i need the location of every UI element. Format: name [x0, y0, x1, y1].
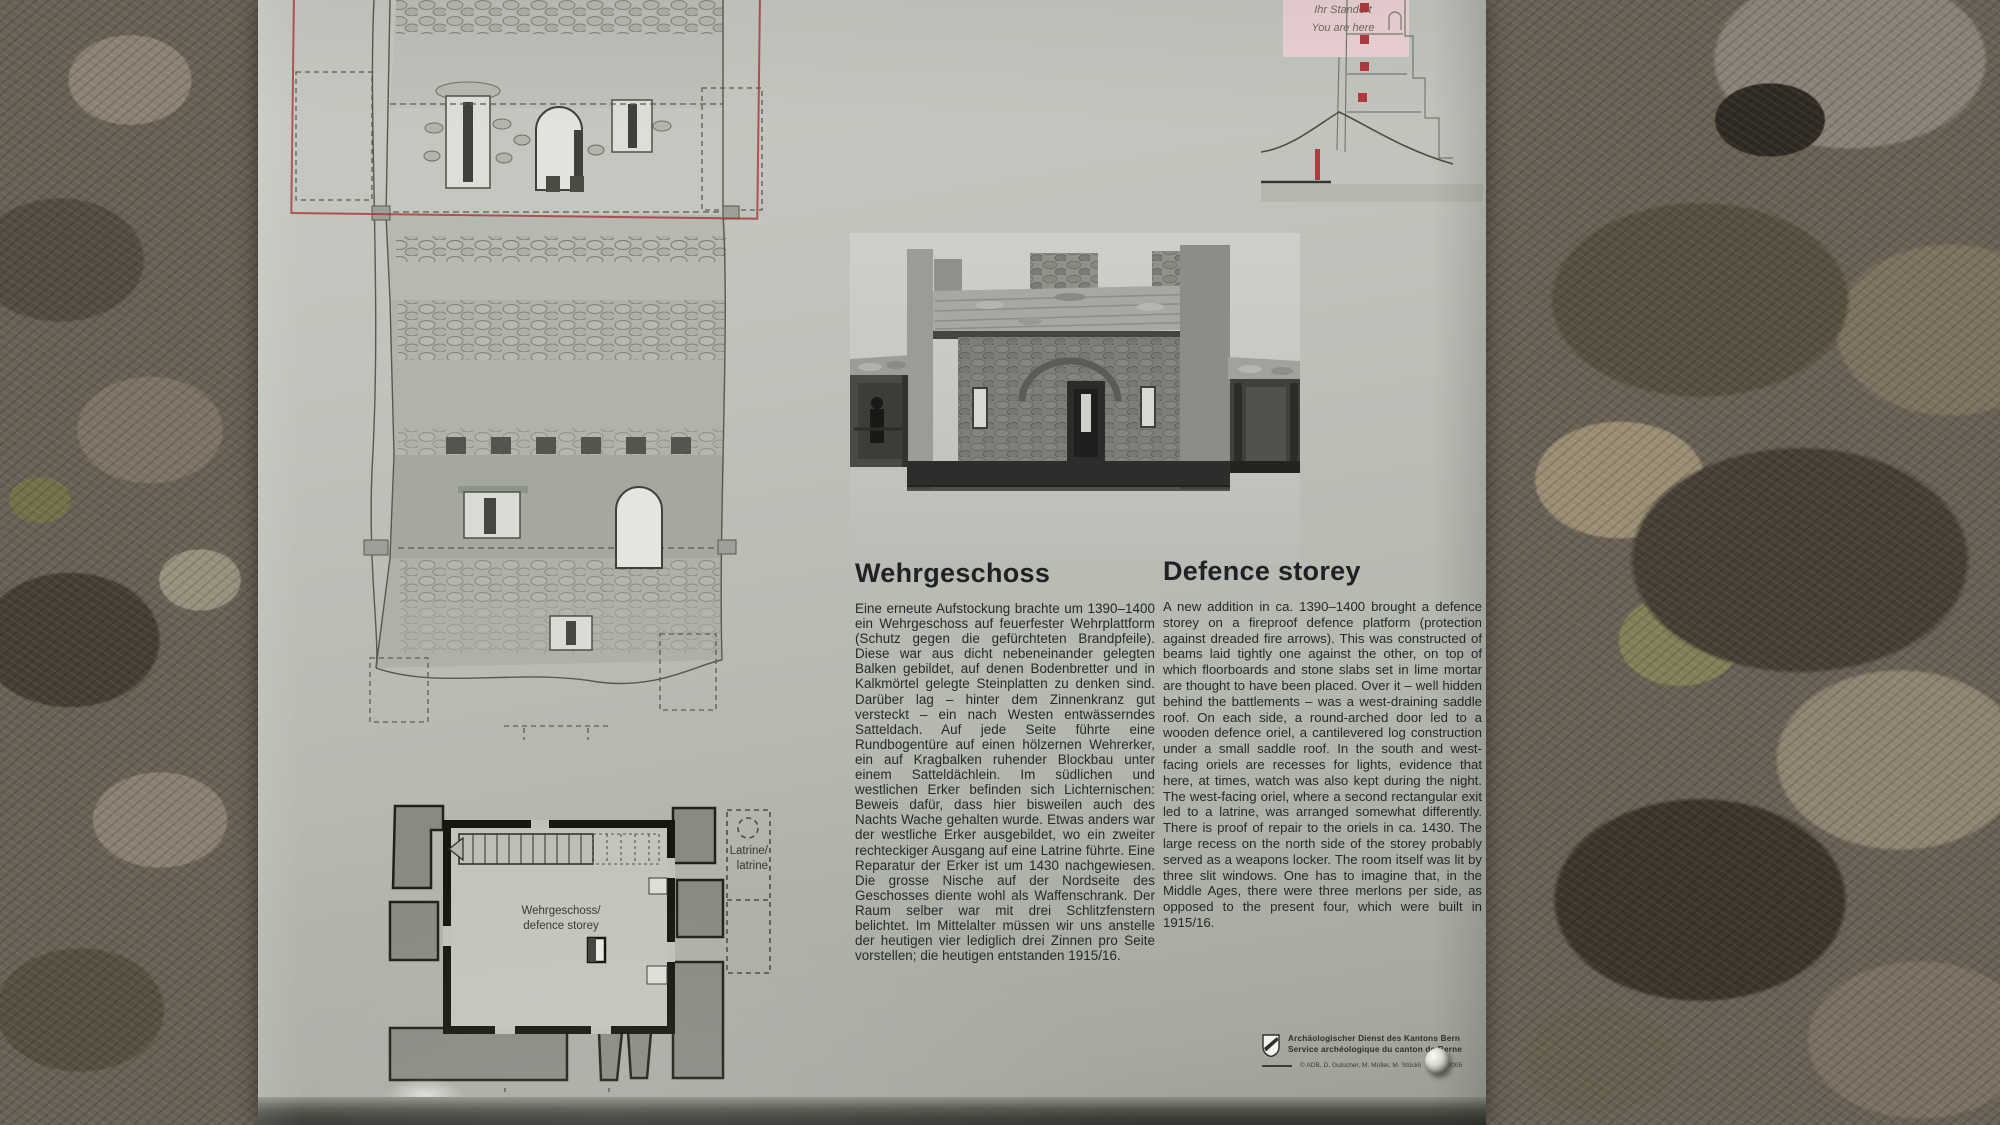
english-paragraph: A new addition in ca. 1390–1400 brought …: [1163, 599, 1482, 931]
latrine-label-line1: Latrine/: [730, 845, 769, 857]
locator-label-en: You are here: [1312, 22, 1375, 34]
centre-post: [588, 938, 605, 962]
information-panel: Ihr Standort You are here: [258, 0, 1486, 1125]
west-defence-oriel: [850, 355, 912, 467]
east-defence-oriel: [1228, 357, 1300, 473]
room-label-line2: defence storey: [523, 920, 599, 932]
watchman-figure: [871, 397, 883, 409]
ground-band: [1261, 184, 1483, 202]
latrine-label-line2: latrine: [737, 860, 768, 872]
defence-storey-model-photo: [850, 233, 1300, 563]
tower-location-diagram: Ihr Standort You are here: [1253, 0, 1485, 210]
bern-coat-of-arms-icon: [1262, 1034, 1280, 1057]
right-corner-pillar: [1180, 245, 1230, 489]
english-title: Defence storey: [1163, 556, 1361, 587]
credits-org-de: Archäologischer Dienst des Kantons Bern: [1288, 1034, 1462, 1045]
credits-divider: [1262, 1065, 1292, 1067]
defence-storey-highlight-rectangle: [290, 0, 761, 220]
photo-scene: Ihr Standort You are here: [0, 0, 2000, 1125]
german-title: Wehrgeschoss: [855, 558, 1050, 589]
room-label-line1: Wehrgeschoss/: [521, 905, 601, 917]
german-paragraph: Eine erneute Aufstockung brachte um 1390…: [855, 601, 1155, 963]
latrine-annex-outline: [727, 810, 770, 973]
platform-base: [907, 461, 1230, 487]
round-arched-door: [1067, 381, 1105, 463]
rock-profile-line: [1261, 112, 1453, 164]
credits-block: Archäologischer Dienst des Kantons Bern …: [1262, 1034, 1492, 1069]
panel-location-marker: [1315, 149, 1320, 180]
credits-copyright: © ADB, D. Gutscher, M. Müller, M. Stöckl…: [1300, 1062, 1421, 1069]
mounting-bolt: [1425, 1048, 1450, 1075]
panel-bottom-edge-shadow: [258, 1097, 1486, 1125]
